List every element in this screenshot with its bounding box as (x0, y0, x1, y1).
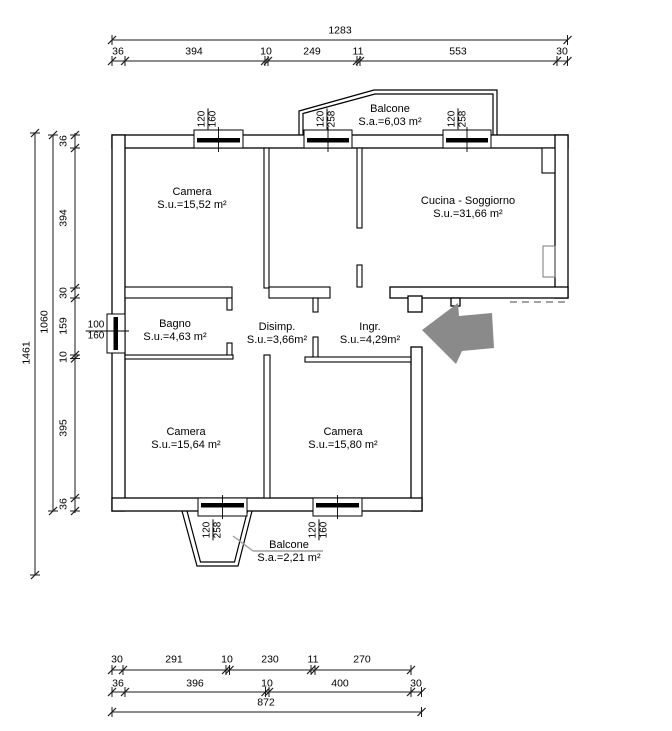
dim-bottom-seg: 396 (186, 678, 204, 691)
floor-plan-canvas: 1283 36 394 10 249 11 553 30 1461 1060 3… (0, 0, 672, 731)
dim-bottom-total: 872 (257, 697, 275, 710)
dim-left-seg: 394 (58, 209, 71, 227)
room-name: Balcone (257, 539, 320, 552)
room-name: Bagno (143, 318, 206, 331)
window-width: 120 (317, 109, 327, 130)
entrance-arrow-icon (422, 303, 494, 364)
dim-top-total: 1283 (328, 25, 351, 38)
dim-bottom-seg: 10 (221, 654, 233, 667)
room-area: S.u.=4,63 m² (143, 331, 206, 344)
window-camera-br (313, 495, 362, 519)
window-width: 120 (203, 520, 213, 541)
room-name: Cucina - Soggiorno (421, 195, 515, 208)
dim-bottom-seg: 10 (261, 678, 273, 691)
dim-left-seg: 30 (58, 287, 71, 299)
dim-bottom-seg: 11 (308, 654, 319, 667)
window-camera-tl (194, 127, 243, 152)
dim-bottom-seg: 291 (165, 654, 183, 667)
room-label-balcone-sud: Balcone S.a.=2,21 m² (257, 539, 320, 565)
room-name: Camera (308, 426, 377, 439)
dim-left-seg: 36 (58, 135, 71, 147)
room-name: Ingr. (340, 321, 400, 334)
window-width: 120 (198, 109, 208, 130)
window-height: 160 (86, 331, 107, 342)
dim-top-seg: 30 (556, 46, 568, 59)
dim-left-body: 1060 (39, 310, 52, 333)
window-label-bagno: 100 160 (86, 321, 107, 342)
window-width: 100 (86, 321, 107, 331)
window-label-corridoio: 120 258 (317, 109, 338, 130)
dim-bottom-seg: 270 (353, 654, 371, 667)
dim-top-seg: 36 (112, 46, 124, 59)
dim-bottom-seg: 230 (261, 654, 279, 667)
dim-left-seg: 36 (58, 498, 71, 510)
window-corridoio (304, 127, 352, 152)
room-label-bagno: Bagno S.u.=4,63 m² (143, 318, 206, 344)
dimension-block-top (108, 35, 572, 66)
room-area: S.u.=15,52 m² (157, 199, 226, 212)
window-label-camera-bl: 120 258 (203, 520, 224, 541)
window-height: 160 (319, 520, 330, 541)
room-area: S.a.=6,03 m² (358, 116, 421, 129)
cucina-fixtures (542, 148, 555, 277)
dim-top-seg: 11 (353, 46, 364, 59)
room-name: Camera (151, 426, 220, 439)
window-label-camera-br: 120 160 (309, 520, 330, 541)
window-cucina (443, 127, 491, 152)
room-area: S.u.=15,64 m² (151, 439, 220, 452)
room-area: S.u.=31,66 m² (421, 208, 515, 221)
dimension-block-left (30, 129, 80, 579)
window-width: 120 (309, 520, 319, 541)
window-height: 258 (213, 520, 224, 541)
room-area: S.a.=2,21 m² (257, 552, 320, 565)
dim-left-seg: 159 (58, 317, 71, 335)
window-height: 258 (327, 109, 338, 130)
dim-left-seg: 395 (58, 419, 71, 437)
dim-bottom-seg: 36 (112, 678, 124, 691)
room-name: Balcone (358, 103, 421, 116)
window-width: 120 (448, 109, 458, 130)
room-label-ingresso: Ingr. S.u.=4,29m² (340, 321, 400, 347)
dim-top-seg: 10 (260, 46, 272, 59)
window-label-camera-tl: 120 160 (198, 109, 219, 130)
window-height: 258 (458, 109, 469, 130)
room-label-cucina-soggiorno: Cucina - Soggiorno S.u.=31,66 m² (421, 195, 515, 221)
room-label-balcone-nord: Balcone S.a.=6,03 m² (358, 103, 421, 129)
room-label-disimpegno: Disimp. S.u.=3,66m² (247, 321, 307, 347)
window-camera-bl (198, 495, 247, 519)
room-area: S.u.=3,66m² (247, 334, 307, 347)
room-name: Camera (157, 186, 226, 199)
dim-bottom-seg: 30 (111, 654, 123, 667)
dim-top-seg: 553 (449, 46, 467, 59)
dim-left-seg: 10 (58, 351, 71, 363)
window-height: 160 (208, 109, 219, 130)
window-label-cucina: 120 258 (448, 109, 469, 130)
dim-bottom-seg: 30 (410, 678, 422, 691)
dim-top-seg: 394 (185, 46, 203, 59)
dim-left-overall: 1461 (21, 341, 34, 364)
room-area: S.u.=4,29m² (340, 334, 400, 347)
room-area: S.u.=15,80 m² (308, 439, 377, 452)
room-label-camera-br: Camera S.u.=15,80 m² (308, 426, 377, 452)
room-label-camera-bl: Camera S.u.=15,64 m² (151, 426, 220, 452)
dim-bottom-seg: 400 (331, 678, 349, 691)
room-label-camera-tl: Camera S.u.=15,52 m² (157, 186, 226, 212)
dim-top-seg: 249 (303, 46, 321, 59)
room-name: Disimp. (247, 321, 307, 334)
